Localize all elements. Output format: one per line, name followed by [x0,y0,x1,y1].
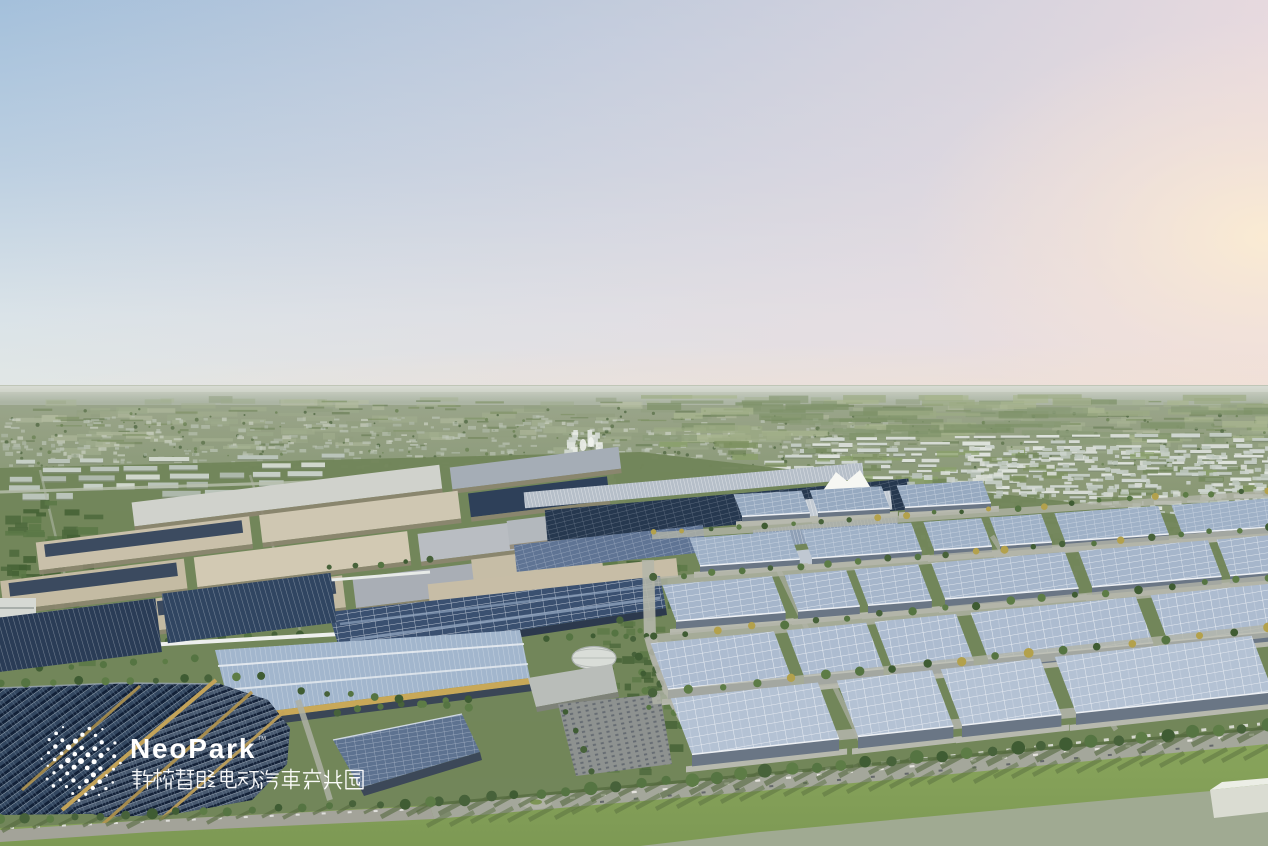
svg-text:TM: TM [258,736,266,742]
svg-text:NeoPark: NeoPark [130,733,256,764]
